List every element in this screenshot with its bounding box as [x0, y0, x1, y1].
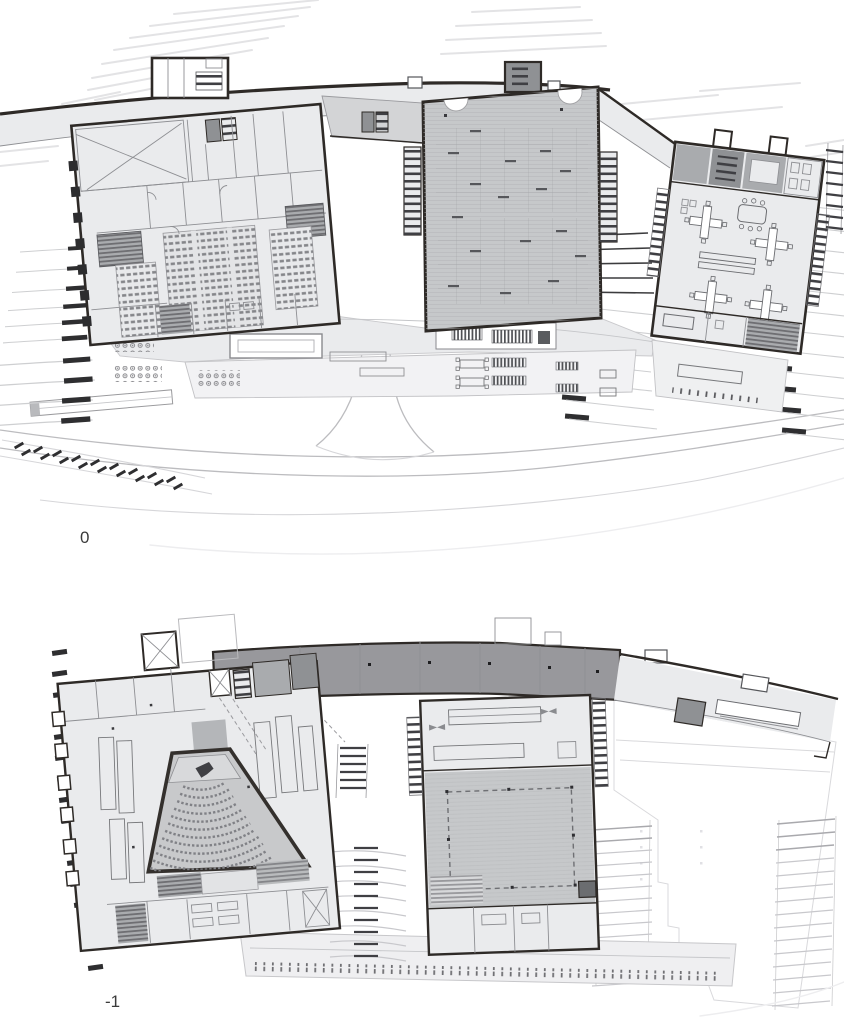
side-seating-east: [269, 226, 318, 309]
side-seating-west: [116, 262, 162, 337]
center-block-lower: [406, 694, 614, 955]
terrain-contour: [700, 982, 844, 1016]
reflecting-pool: [230, 334, 322, 358]
stair-shaft: [142, 631, 179, 670]
ghost-stair-east: [772, 816, 836, 1010]
level-0-label: 0: [80, 528, 89, 547]
west-ramp: [30, 390, 173, 416]
planter-grid: [196, 370, 240, 388]
plan-level-minus-1: -1: [45, 607, 844, 1016]
planter-grid: [114, 366, 162, 382]
plan-level-0: 0: [0, 0, 844, 554]
west-wing: [65, 104, 339, 345]
floor-plans-canvas: 0: [0, 0, 844, 1024]
drawing-sheet: 0: [0, 0, 844, 1024]
central-hall: [404, 80, 617, 331]
path-edge-markers: [14, 442, 183, 491]
north-stair-pavilion: [152, 58, 228, 98]
east-link-corridor: [614, 654, 838, 758]
level-minus-1-label: -1: [105, 992, 120, 1011]
west-wing-lower: [45, 607, 340, 951]
